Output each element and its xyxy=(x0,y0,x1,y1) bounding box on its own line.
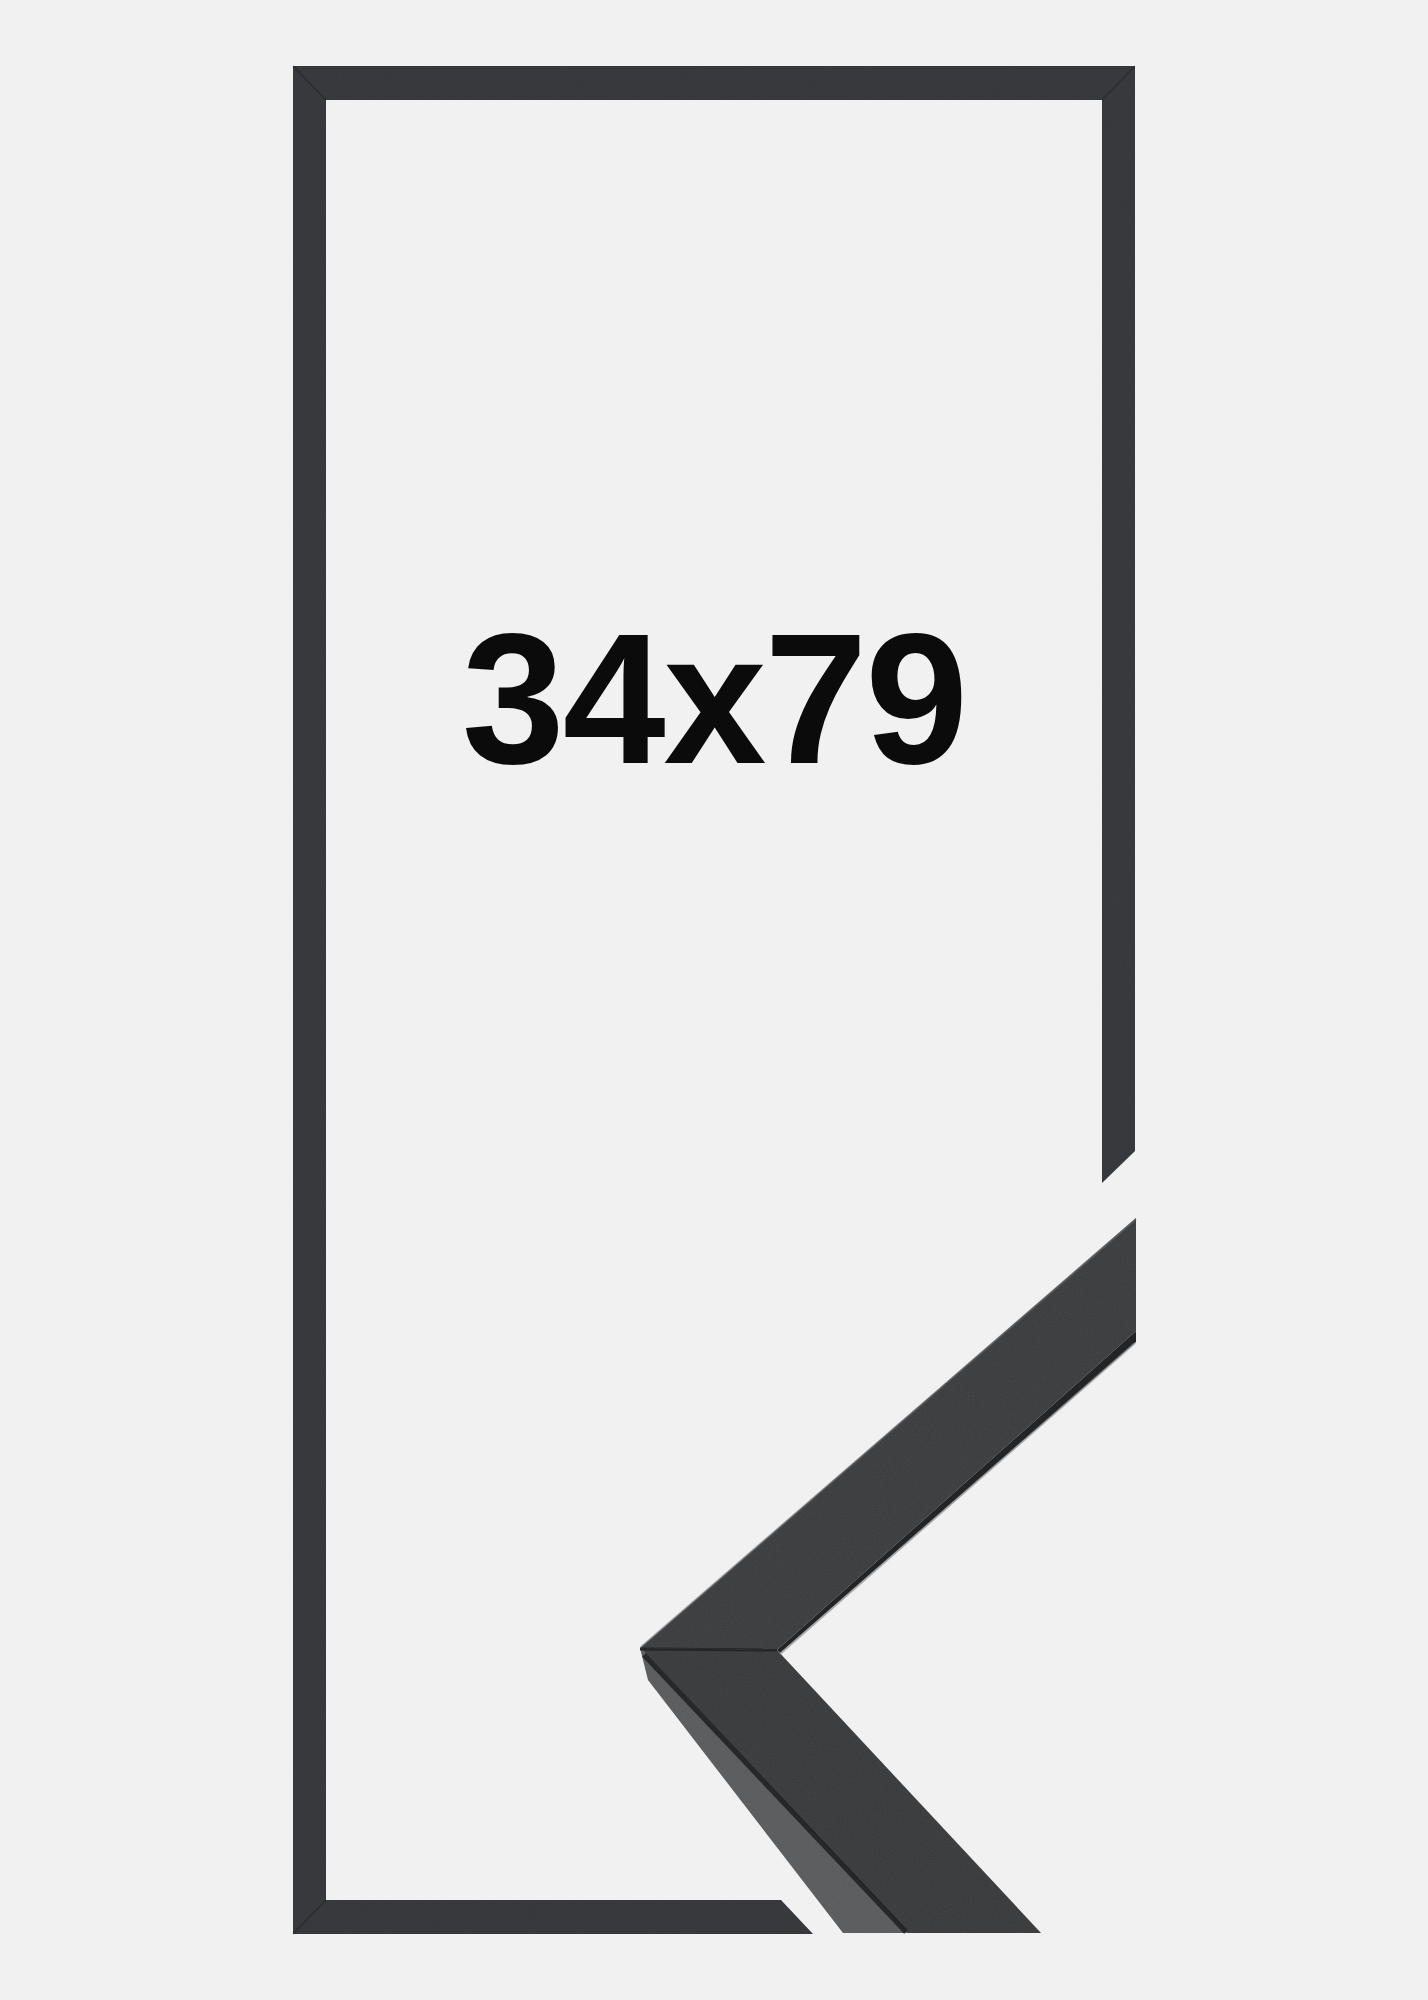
frame-product-graphic: 34x79 xyxy=(0,0,1428,2000)
frame-product-image: 34x79 xyxy=(0,0,1428,2000)
size-label: 34x79 xyxy=(462,596,966,802)
